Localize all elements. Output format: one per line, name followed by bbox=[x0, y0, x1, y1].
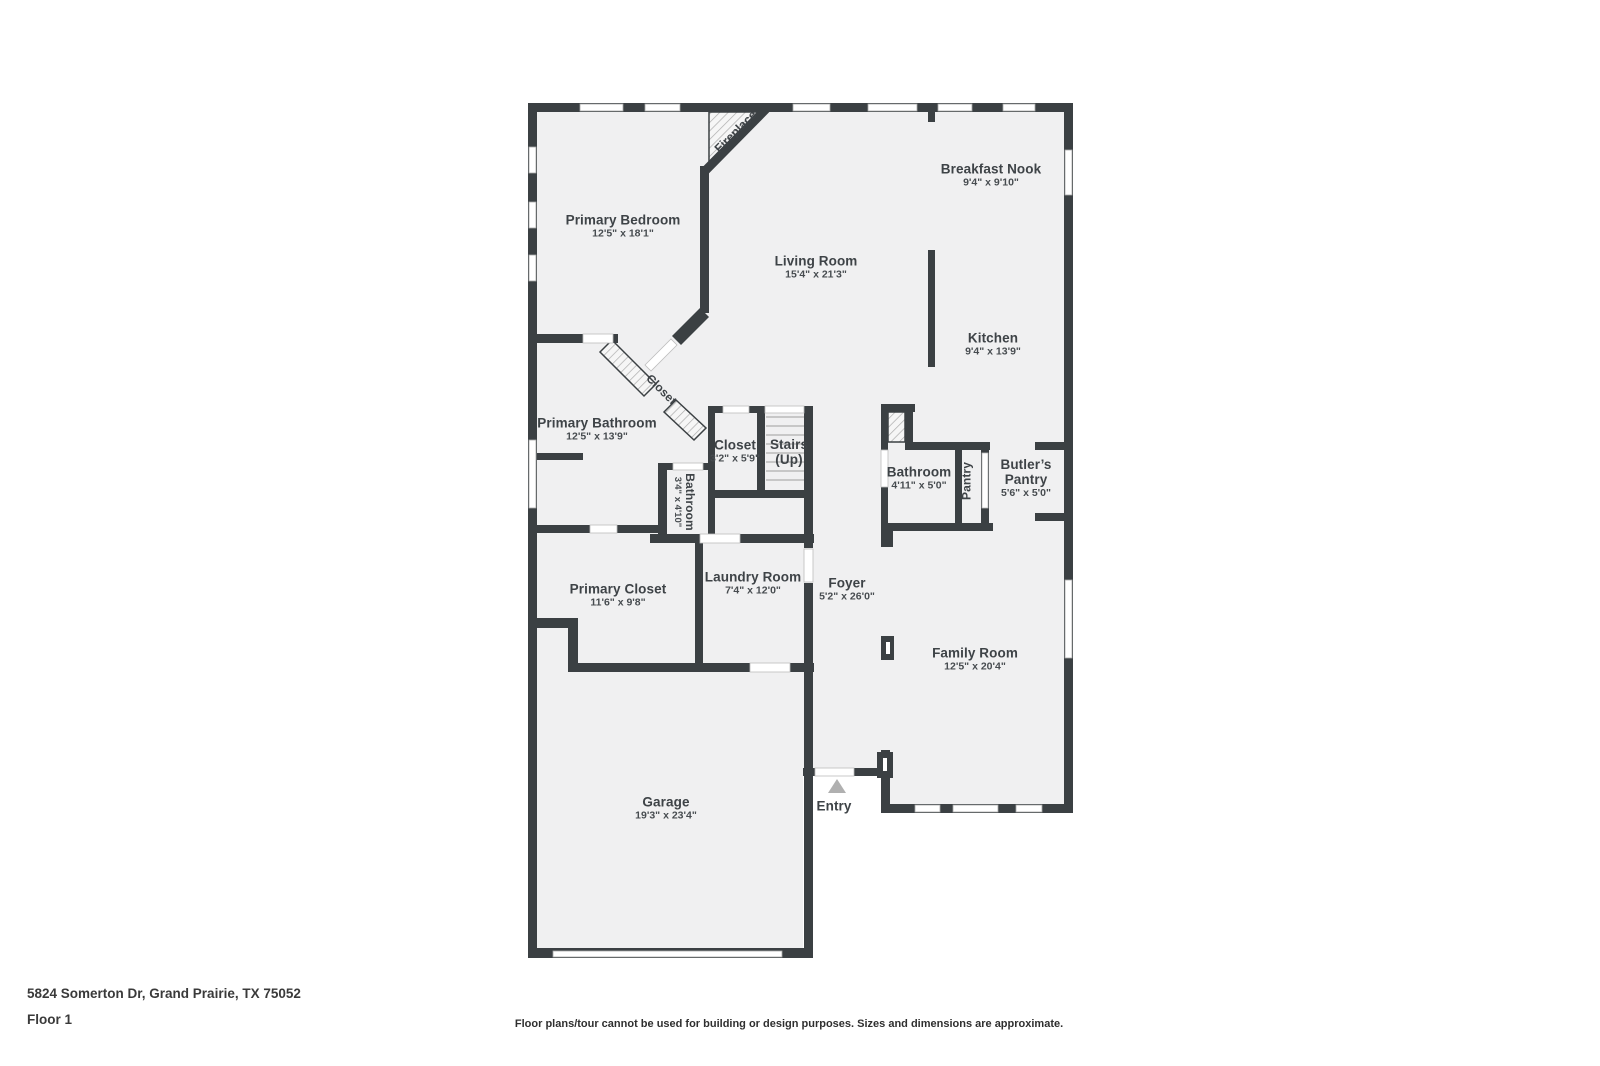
floorplan-drawing bbox=[0, 0, 1600, 1066]
floor-label: Floor 1 bbox=[27, 1012, 72, 1027]
address-text: 5824 Somerton Dr, Grand Prairie, TX 7505… bbox=[27, 986, 301, 1001]
entry-triangle bbox=[828, 779, 846, 793]
garage-door bbox=[553, 951, 782, 957]
disclaimer-text: Floor plans/tour cannot be used for buil… bbox=[515, 1018, 1063, 1030]
shower-hatch bbox=[888, 412, 905, 442]
floorplan-page: Primary Bedroom12'5" x 18'1"Living Room1… bbox=[0, 0, 1600, 1066]
floorplan-canvas: Primary Bedroom12'5" x 18'1"Living Room1… bbox=[0, 0, 1600, 1066]
